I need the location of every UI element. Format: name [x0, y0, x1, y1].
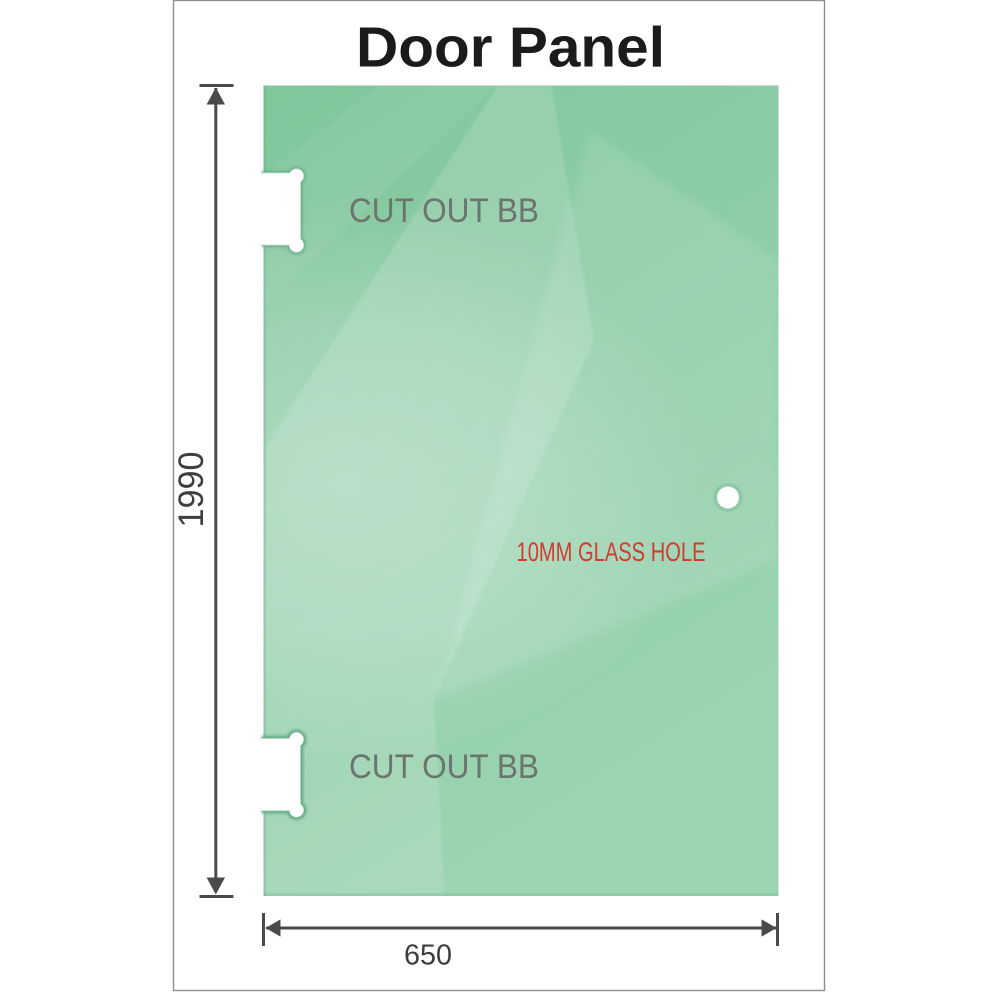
svg-text:650: 650 [404, 940, 452, 972]
svg-text:Door Panel: Door Panel [356, 16, 665, 80]
svg-text:CUT OUT BB: CUT OUT BB [349, 748, 539, 786]
svg-text:1990: 1990 [172, 452, 211, 528]
svg-text:CUT OUT BB: CUT OUT BB [349, 192, 539, 230]
svg-text:10MM GLASS HOLE: 10MM GLASS HOLE [517, 537, 706, 567]
